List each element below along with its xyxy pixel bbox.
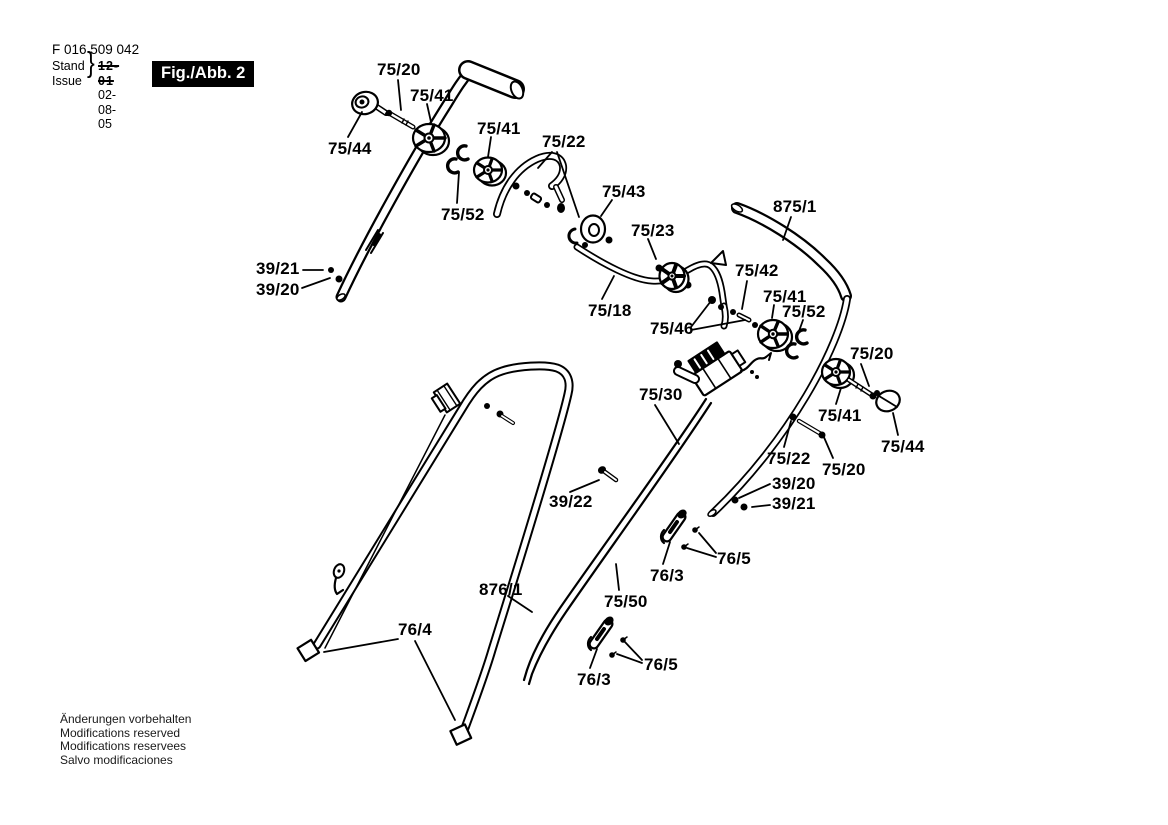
- part-label-39-20-22: 39/20: [772, 474, 816, 494]
- part-label-76-4-29: 76/4: [398, 620, 432, 640]
- part-label-76-3-31: 76/3: [577, 670, 611, 690]
- part-label-75-41-18: 75/41: [818, 406, 862, 426]
- part-label-75-52-5: 75/52: [441, 205, 485, 225]
- part-label-75-22-20: 75/22: [767, 449, 811, 469]
- notice-line: Modifications reserved: [60, 727, 191, 741]
- part-label-39-22-24: 39/22: [549, 492, 593, 512]
- part-label-75-20-16: 75/20: [850, 344, 894, 364]
- part-label-75-52-14: 75/52: [782, 302, 826, 322]
- part-label-39-21-9: 39/21: [256, 259, 300, 279]
- part-label-75-43-6: 75/43: [602, 182, 646, 202]
- exploded-parts-diagram: F 016 509 042 Stand Issue } 12-01 02-08-…: [0, 0, 1168, 825]
- part-label-75-42-12: 75/42: [735, 261, 779, 281]
- part-label-75-44-19: 75/44: [881, 437, 925, 457]
- part-label-75-20-0: 75/20: [377, 60, 421, 80]
- notice-line: Änderungen vorbehalten: [60, 713, 191, 727]
- part-label-76-5-25: 76/5: [717, 549, 751, 569]
- part-label-75-44-2: 75/44: [328, 139, 372, 159]
- modifications-notice: Änderungen vorbehalten Modifications res…: [60, 713, 191, 767]
- part-label-75-41-3: 75/41: [477, 119, 521, 139]
- part-label-75-46-15: 75/46: [650, 319, 694, 339]
- part-label-75-20-21: 75/20: [822, 460, 866, 480]
- part-label-75-30-17: 75/30: [639, 385, 683, 405]
- part-label-76-5-30: 76/5: [644, 655, 678, 675]
- notice-line: Salvo modificaciones: [60, 754, 191, 768]
- part-label-75-18-11: 75/18: [588, 301, 632, 321]
- part-label-75-41-1: 75/41: [410, 86, 454, 106]
- part-label-76-3-26: 76/3: [650, 566, 684, 586]
- part-label-75-22-4: 75/22: [542, 132, 586, 152]
- part-label-75-50-28: 75/50: [604, 592, 648, 612]
- part-label-875-1-8: 875/1: [773, 197, 817, 217]
- part-label-876-1-27: 876/1: [479, 580, 523, 600]
- part-label-39-20-10: 39/20: [256, 280, 300, 300]
- notice-line: Modifications reservees: [60, 740, 191, 754]
- part-labels-layer: 75/2075/4175/4475/4175/2275/5275/4375/23…: [0, 0, 1168, 825]
- part-label-39-21-23: 39/21: [772, 494, 816, 514]
- part-label-75-23-7: 75/23: [631, 221, 675, 241]
